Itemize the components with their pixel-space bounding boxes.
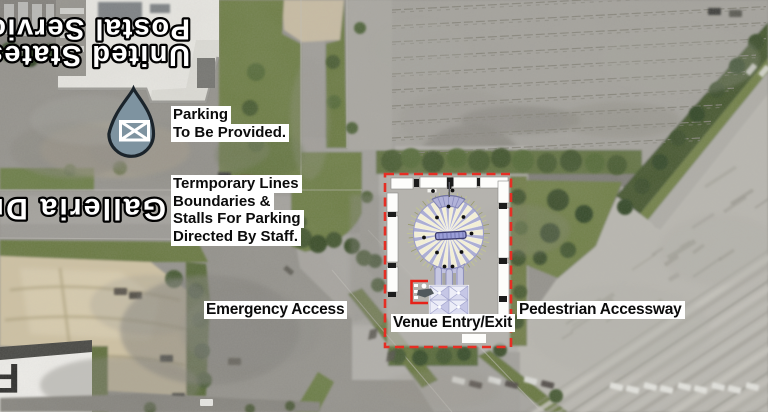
svg-text:Postal Service: Postal Service bbox=[0, 13, 190, 45]
svg-text:Galleria Dr: Galleria Dr bbox=[0, 192, 166, 225]
